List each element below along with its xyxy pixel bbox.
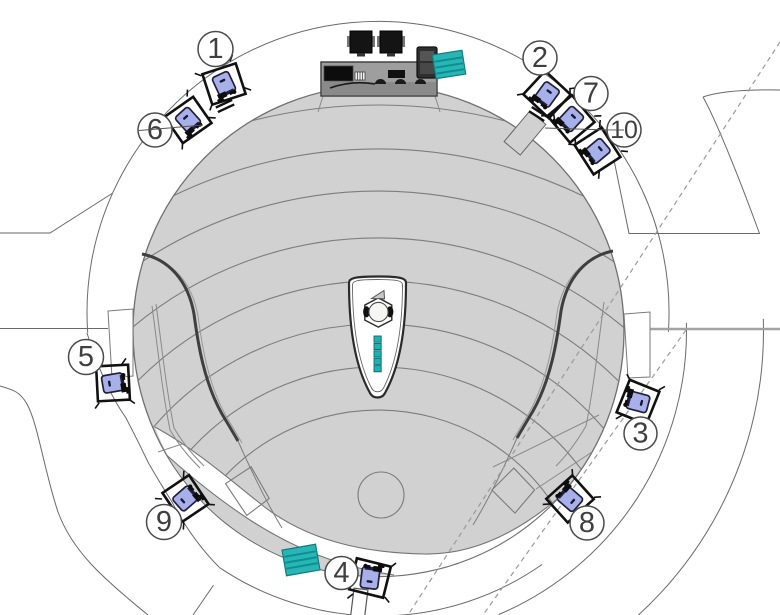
svg-text:8: 8 [579,507,595,539]
svg-text:7: 7 [583,78,599,110]
svg-text:9: 9 [156,506,172,538]
svg-text:4: 4 [333,557,349,589]
svg-text:5: 5 [78,341,94,373]
svg-text:3: 3 [632,418,648,450]
svg-text:1: 1 [207,33,223,65]
svg-text:2: 2 [532,42,548,74]
